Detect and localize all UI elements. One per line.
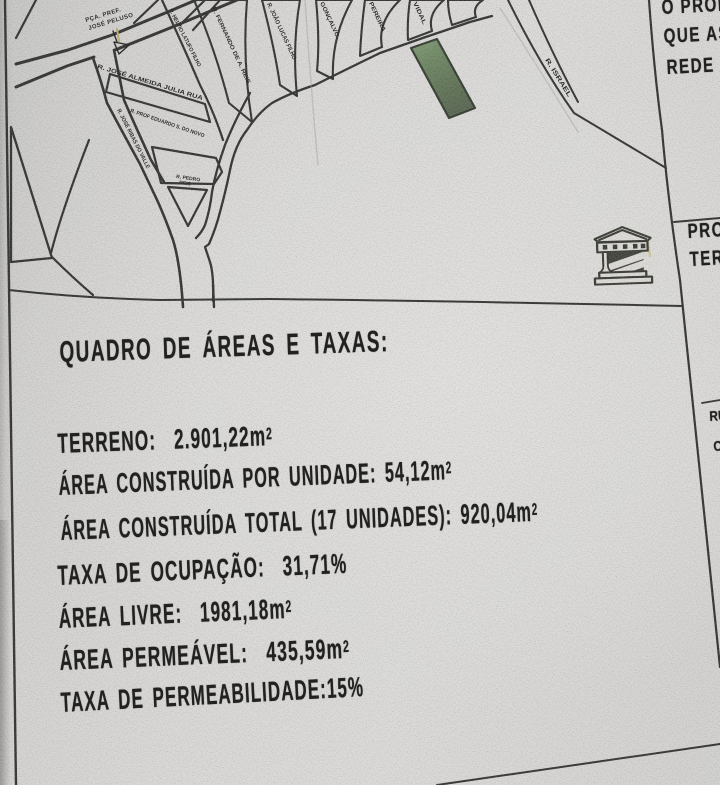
svg-text:REIS: REIS [179,180,192,188]
svg-text:GONÇALVO: GONÇALVO [318,1,340,38]
svg-text:R. JOSÉ ALMEIDA JULIA RUA: R. JOSÉ ALMEIDA JULIA RUA [96,62,204,102]
svg-text:VIDAL: VIDAL [411,1,427,26]
svg-text:PEREIRA: PEREIRA [367,1,386,33]
